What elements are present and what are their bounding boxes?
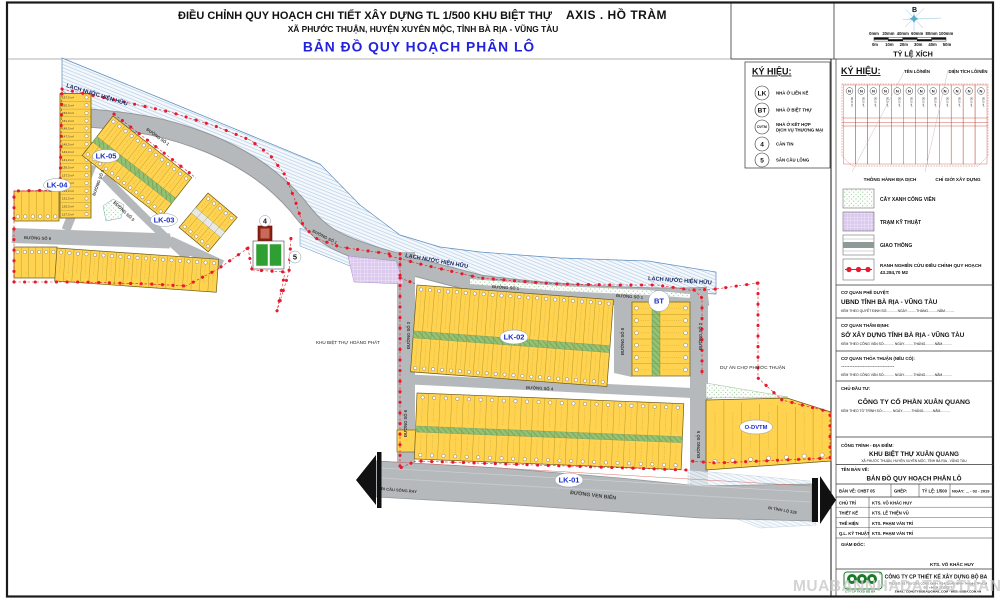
svg-text:THỂ HIỆN: THỂ HIỆN xyxy=(839,521,859,526)
svg-text:0mm: 0mm xyxy=(869,31,879,36)
svg-text:40mm: 40mm xyxy=(897,31,909,36)
svg-text:30m: 30m xyxy=(914,42,923,47)
svg-text:127,3 m²: 127,3 m² xyxy=(62,212,74,216)
svg-text:N: N xyxy=(980,89,983,94)
svg-text:153,3 m²: 153,3 m² xyxy=(62,111,74,115)
svg-text:CƠ QUAN PHÊ DUYỆT:: CƠ QUAN PHÊ DUYỆT: xyxy=(841,290,890,295)
svg-text:DIỆN TÍCH LÔ/NỀN: DIỆN TÍCH LÔ/NỀN xyxy=(949,69,988,74)
svg-text:UBND TỈNH BÀ RỊA - VŨNG TÀU: UBND TỈNH BÀ RỊA - VŨNG TÀU xyxy=(841,297,938,306)
svg-text:NHÀ Ở BIỆT THỰ: NHÀ Ở BIỆT THỰ xyxy=(776,108,812,113)
svg-text:139,3 m²: 139,3 m² xyxy=(62,166,74,170)
svg-text:00,0 m²: 00,0 m² xyxy=(850,97,854,107)
svg-text:4: 4 xyxy=(263,218,267,225)
svg-text:NGÀY: ... - 02 - 2019: NGÀY: ... - 02 - 2019 xyxy=(952,489,990,494)
svg-text:DVTM: DVTM xyxy=(757,125,767,129)
svg-text:XÃ PHƯỚC THUẬN, HUYỆN XUYÊN MỘ: XÃ PHƯỚC THUẬN, HUYỆN XUYÊN MỘC, TỈNH BÀ… xyxy=(288,23,559,34)
svg-text:00,0 m²: 00,0 m² xyxy=(922,97,926,107)
svg-text:B: B xyxy=(912,7,917,14)
svg-text:131,3 m²: 131,3 m² xyxy=(62,197,74,201)
svg-text:00,0 m²: 00,0 m² xyxy=(862,97,866,107)
svg-text:N: N xyxy=(956,89,959,94)
svg-text:N: N xyxy=(896,89,899,94)
svg-text:20mm: 20mm xyxy=(882,31,894,36)
svg-text:KÈM THEO QUYẾT ĐỊNH SỐ:.......: KÈM THEO QUYẾT ĐỊNH SỐ:.......... NGÀY..… xyxy=(841,308,954,313)
svg-text:TRẠM KỸ THUẬT: TRẠM KỸ THUẬT xyxy=(880,219,921,226)
svg-text:00,0 m²: 00,0 m² xyxy=(898,97,902,107)
svg-text:RANH NGHIÊN CỨU ĐIỀU CHỈNH QUY: RANH NGHIÊN CỨU ĐIỀU CHỈNH QUY HOẠCH xyxy=(880,261,982,268)
svg-text:CÔNG TRÌNH - ĐỊA ĐIỂM:: CÔNG TRÌNH - ĐỊA ĐIỂM: xyxy=(841,443,894,448)
svg-text:N: N xyxy=(860,89,863,94)
svg-text:LK-02: LK-02 xyxy=(504,333,525,342)
svg-text:BT: BT xyxy=(758,107,767,114)
svg-text:Q.L. KỸ THUẬT: Q.L. KỸ THUẬT xyxy=(839,531,870,536)
svg-text:ĐƯỜNG SỐ 6: ĐƯỜNG SỐ 6 xyxy=(24,235,52,241)
svg-text:BẢN ĐỒ QUY HOẠCH PHÂN LÔ: BẢN ĐỒ QUY HOẠCH PHÂN LÔ xyxy=(303,38,535,55)
svg-text:NHÀ Ở KẾT HỢP: NHÀ Ở KẾT HỢP xyxy=(776,122,811,127)
svg-text:KHU BIỆT THỰ XUÂN QUANG: KHU BIỆT THỰ XUÂN QUANG xyxy=(869,449,959,458)
svg-text:BẢN VẼ: CHBT 05: BẢN VẼ: CHBT 05 xyxy=(839,489,876,494)
svg-text:N: N xyxy=(872,89,875,94)
svg-text:N: N xyxy=(908,89,911,94)
svg-text:TÊN BẢN VẼ:: TÊN BẢN VẼ: xyxy=(841,467,870,472)
svg-text:DỊCH VỤ THƯƠNG MẠI: DỊCH VỤ THƯƠNG MẠI xyxy=(776,128,823,133)
svg-text:CHỈ GIỚI XÂY DỰNG: CHỈ GIỚI XÂY DỰNG xyxy=(935,175,981,182)
svg-text:00,0 m²: 00,0 m² xyxy=(934,97,938,107)
svg-text:GIÁM ĐỐC:: GIÁM ĐỐC: xyxy=(841,542,865,547)
svg-text:00,0 m²: 00,0 m² xyxy=(910,97,914,107)
svg-text:N: N xyxy=(884,89,887,94)
svg-text:KTS. VÕ KHẮC HUY: KTS. VÕ KHẮC HUY xyxy=(872,501,912,506)
svg-text:10m: 10m xyxy=(885,42,894,47)
svg-text:CƠ QUAN THẨM ĐỊNH:: CƠ QUAN THẨM ĐỊNH: xyxy=(841,323,890,328)
svg-text:43.284,70 M2: 43.284,70 M2 xyxy=(880,270,909,275)
svg-text:143,3 m²: 143,3 m² xyxy=(62,150,74,154)
svg-text:151,3 m²: 151,3 m² xyxy=(62,119,74,123)
svg-text:KTS. PHẠM VĂN TRÍ: KTS. PHẠM VĂN TRÍ xyxy=(872,521,914,526)
svg-text:N: N xyxy=(932,89,935,94)
svg-text:00,0 m²: 00,0 m² xyxy=(874,97,878,107)
svg-text:KÈM THEO TỜ TRÌNH SỐ:.........: KÈM THEO TỜ TRÌNH SỐ:.......... NGÀY....… xyxy=(841,408,950,413)
svg-text:129,3 m²: 129,3 m² xyxy=(62,205,74,209)
svg-text:LK-04: LK-04 xyxy=(47,181,69,190)
svg-text:N: N xyxy=(944,89,947,94)
svg-text:KÝ HIỆU:: KÝ HIỆU: xyxy=(841,65,881,76)
svg-text:60mm: 60mm xyxy=(911,31,923,36)
svg-text:4: 4 xyxy=(760,141,764,148)
svg-text:THÔNG HÀNH ĐỊA DỊCH: THÔNG HÀNH ĐỊA DỊCH xyxy=(864,175,917,182)
svg-text:LK-05: LK-05 xyxy=(96,152,117,161)
svg-text:KTS. VÕ KHẮC HUY: KTS. VÕ KHẮC HUY xyxy=(930,560,974,567)
svg-text:CÂY XANH CÔNG VIÊN: CÂY XANH CÔNG VIÊN xyxy=(880,195,936,203)
svg-text:155,3 m²: 155,3 m² xyxy=(62,103,74,107)
svg-text:TÊN LÔ/NỀN: TÊN LÔ/NỀN xyxy=(904,69,930,74)
svg-text:NHÀ Ở LIÊN KẾ: NHÀ Ở LIÊN KẾ xyxy=(776,91,808,96)
svg-text:DỰ ÁN CHỢ PHƯỚC THUẬN: DỰ ÁN CHỢ PHƯỚC THUẬN xyxy=(720,364,786,371)
svg-text:ĐƯỜNG SỐ 2: ĐƯỜNG SỐ 2 xyxy=(698,322,703,350)
svg-text:141,3 m²: 141,3 m² xyxy=(62,158,74,162)
svg-text:CHỦ TRÌ: CHỦ TRÌ xyxy=(839,501,856,506)
svg-text:LK-03: LK-03 xyxy=(154,216,175,225)
svg-text:KTS. LÊ THIỆN VŨ: KTS. LÊ THIỆN VŨ xyxy=(872,511,909,516)
svg-text:50m: 50m xyxy=(943,42,952,47)
svg-text:KÝ HIỆU:: KÝ HIỆU: xyxy=(752,66,792,77)
svg-text:ĐƯỜNG SỐ 8: ĐƯỜNG SỐ 8 xyxy=(620,327,625,355)
svg-text:GIAO THÔNG: GIAO THÔNG xyxy=(880,241,912,249)
svg-text:145,3 m²: 145,3 m² xyxy=(62,142,74,146)
svg-text:ĐƯỜNG SỐ 5: ĐƯỜNG SỐ 5 xyxy=(696,430,701,458)
svg-text:AXIS . HỒ TRÀM: AXIS . HỒ TRÀM xyxy=(566,7,667,22)
svg-text:N: N xyxy=(968,89,971,94)
svg-text:147,3 m²: 147,3 m² xyxy=(62,135,74,139)
svg-text:5: 5 xyxy=(760,157,764,164)
svg-text:KÈM THEO CÔNG VĂN SỐ:.........: KÈM THEO CÔNG VĂN SỐ:.......... NGÀY....… xyxy=(841,341,952,346)
svg-text:SÂN CẦU LÔNG: SÂN CẦU LÔNG xyxy=(776,158,810,163)
svg-text:N: N xyxy=(920,89,923,94)
svg-text:N: N xyxy=(848,89,851,94)
svg-text:CHỦ ĐẦU TƯ:: CHỦ ĐẦU TƯ: xyxy=(841,386,871,391)
svg-text:100mm: 100mm xyxy=(939,31,954,36)
svg-text:MUABANNHADATDOTHAN.COM.VN: MUABANNHADATDOTHAN.COM.VN xyxy=(793,578,1000,595)
svg-text:ĐƯỜNG SỐ 6: ĐƯỜNG SỐ 6 xyxy=(403,409,408,437)
svg-text:00,0 m²: 00,0 m² xyxy=(981,97,985,107)
svg-text:157,3 m²: 157,3 m² xyxy=(62,96,74,100)
svg-text:BT: BT xyxy=(654,297,664,306)
svg-text:149,3 m²: 149,3 m² xyxy=(62,127,74,131)
svg-text:TỶ LỆ: 1/500: TỶ LỆ: 1/500 xyxy=(922,489,948,494)
svg-text:SỞ XÂY DỰNG TỈNH BÀ RỊA - VŨNG: SỞ XÂY DỰNG TỈNH BÀ RỊA - VŨNG TÀU xyxy=(841,330,965,339)
svg-text:80mm: 80mm xyxy=(926,31,938,36)
svg-text:00,0 m²: 00,0 m² xyxy=(945,97,949,107)
svg-text:0m: 0m xyxy=(872,42,878,47)
svg-text:GHÉP:: GHÉP: xyxy=(894,489,907,494)
svg-text:5: 5 xyxy=(293,253,297,262)
svg-text:CƠ QUAN THỎA THUẬN (NẾU CÓ):: CƠ QUAN THỎA THUẬN (NẾU CÓ): xyxy=(841,356,915,361)
svg-text:00,0 m²: 00,0 m² xyxy=(957,97,961,107)
svg-text:------------------------------: -------------------------------- xyxy=(841,364,895,370)
svg-text:137,3 m²: 137,3 m² xyxy=(62,173,74,177)
svg-text:CĂN TIN: CĂN TIN xyxy=(776,142,793,147)
svg-text:THIẾT KẾ: THIẾT KẾ xyxy=(839,511,858,516)
svg-text:ĐIỀU CHỈNH QUY HOẠCH CHI TIẾT: ĐIỀU CHỈNH QUY HOẠCH CHI TIẾT XÂY DỰNG T… xyxy=(178,9,553,22)
svg-text:XÃ PHƯỚC THUẬN, HUYỆN XUYÊN MỘ: XÃ PHƯỚC THUẬN, HUYỆN XUYÊN MỘC, TỈNH BÀ… xyxy=(861,458,967,463)
svg-text:ĐƯỜNG SỐ 3: ĐƯỜNG SỐ 3 xyxy=(406,321,411,349)
svg-text:O-DVTM: O-DVTM xyxy=(745,425,768,431)
svg-text:40m: 40m xyxy=(928,42,937,47)
svg-text:LK-01: LK-01 xyxy=(559,476,580,485)
svg-text:KTS. PHẠM VĂN TRÍ: KTS. PHẠM VĂN TRÍ xyxy=(872,531,914,536)
svg-text:20m: 20m xyxy=(900,42,909,47)
svg-text:TỶ LỆ XÍCH: TỶ LỆ XÍCH xyxy=(893,50,933,59)
svg-text:00,0 m²: 00,0 m² xyxy=(969,97,973,107)
svg-text:KHU BIỆT THỰ HOÀNG PHÁT: KHU BIỆT THỰ HOÀNG PHÁT xyxy=(316,338,380,345)
svg-text:LK: LK xyxy=(758,90,767,97)
svg-text:KÈM THEO CÔNG VĂN SỐ:.........: KÈM THEO CÔNG VĂN SỐ:.......... NGÀY....… xyxy=(841,372,952,377)
